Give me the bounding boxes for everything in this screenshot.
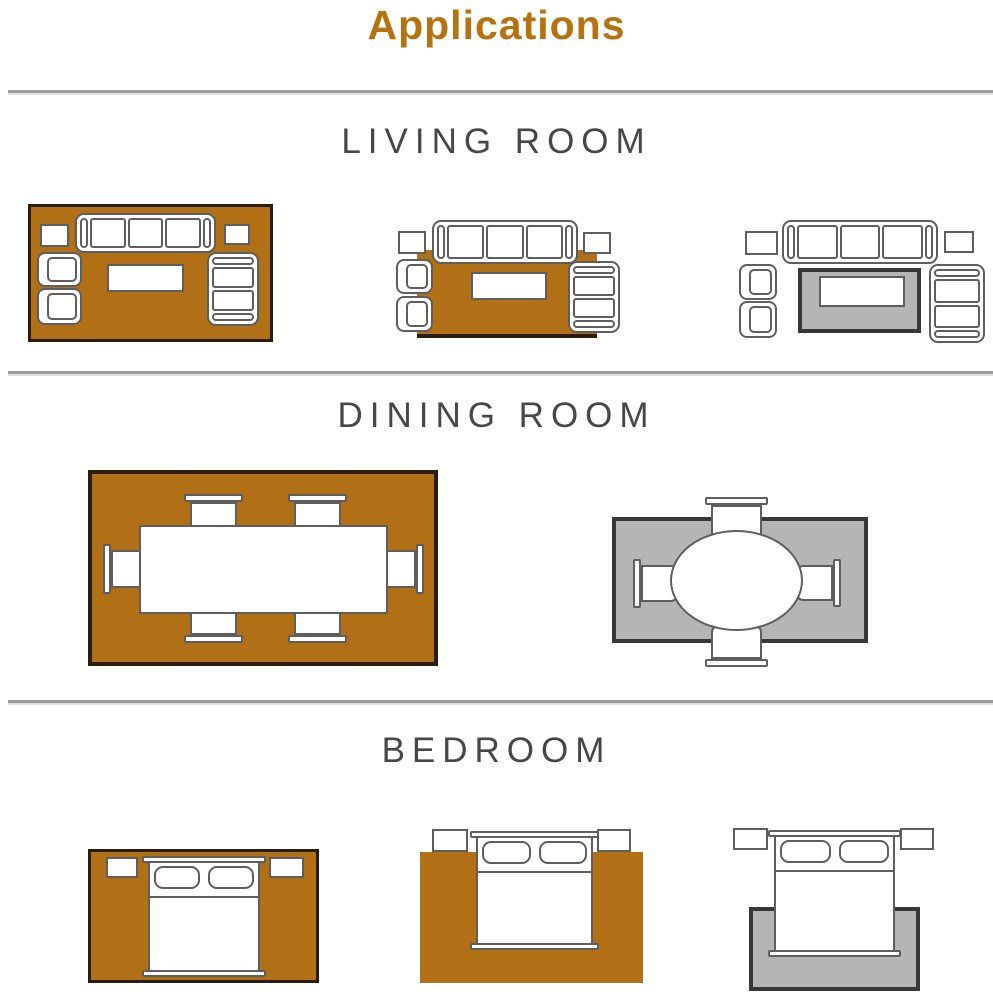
nightstand bbox=[597, 829, 631, 852]
pillow bbox=[539, 841, 588, 864]
round-table bbox=[670, 530, 803, 631]
bedroom-layout-rug-under-foot-of-bed bbox=[730, 823, 938, 995]
pillow bbox=[208, 866, 254, 889]
armchair bbox=[37, 252, 82, 287]
side-table bbox=[40, 224, 69, 247]
armchair-seat bbox=[749, 269, 772, 295]
sofa-arm bbox=[212, 313, 254, 321]
dining-table bbox=[139, 525, 388, 614]
sofa-cushion bbox=[90, 218, 126, 248]
sofa-cushion bbox=[212, 290, 254, 311]
armchair-seat bbox=[749, 306, 772, 333]
chair-back bbox=[705, 659, 768, 667]
sofa-cushion bbox=[840, 225, 881, 259]
sofa-cushion bbox=[212, 267, 254, 288]
sofa-arm bbox=[80, 218, 88, 248]
footboard bbox=[142, 970, 266, 977]
bedroom-layout-bed-fully-on-rug bbox=[88, 849, 319, 983]
sofa-cushion bbox=[934, 305, 980, 329]
armchair bbox=[739, 301, 777, 338]
bed bbox=[148, 856, 260, 977]
chair-back bbox=[416, 544, 424, 594]
side-table bbox=[224, 224, 250, 245]
sofa bbox=[432, 220, 578, 264]
loveseat bbox=[568, 261, 620, 333]
sofa-arm bbox=[437, 225, 445, 259]
blanket-edge bbox=[150, 896, 258, 898]
dining-chair bbox=[382, 544, 424, 594]
armchair-seat bbox=[406, 264, 428, 289]
section-divider bbox=[8, 700, 993, 703]
nightstand bbox=[900, 828, 934, 850]
sofa-cushion bbox=[934, 279, 980, 303]
blanket-edge bbox=[478, 871, 591, 873]
pillow bbox=[482, 841, 531, 864]
armchair-seat bbox=[47, 293, 77, 320]
section-divider bbox=[8, 90, 993, 93]
sofa-arm bbox=[565, 225, 573, 259]
loveseat bbox=[207, 252, 259, 326]
chair-back bbox=[184, 635, 243, 643]
chair-back bbox=[288, 494, 347, 502]
bedroom-layout-bed-two-thirds-on-rug bbox=[420, 823, 643, 984]
sofa-arm bbox=[925, 225, 933, 259]
sofa-cushion bbox=[447, 225, 484, 259]
chair-back bbox=[833, 559, 841, 607]
footboard bbox=[470, 943, 599, 950]
pillow bbox=[780, 840, 831, 863]
chair-back bbox=[184, 494, 243, 502]
headboard bbox=[142, 856, 266, 863]
sofa-cushion bbox=[797, 225, 838, 259]
sofa-arm bbox=[212, 257, 254, 265]
side-table bbox=[745, 231, 778, 255]
sofa-cushion bbox=[573, 298, 615, 318]
sofa-arm bbox=[934, 330, 980, 338]
footboard bbox=[768, 950, 901, 957]
sofa-cushion bbox=[526, 225, 563, 259]
living-room-layout-all-furniture-on-rug bbox=[28, 204, 273, 342]
sofa-cushion bbox=[128, 218, 164, 248]
blanket-edge bbox=[776, 870, 893, 872]
coffee-table bbox=[107, 264, 184, 292]
living-room-layout-coffee-table-only-on-rug bbox=[738, 215, 988, 345]
chair-back bbox=[633, 559, 641, 608]
armchair bbox=[739, 264, 777, 300]
dining-chair bbox=[705, 625, 768, 667]
armchair-seat bbox=[47, 257, 77, 282]
sofa-cushion bbox=[573, 276, 615, 296]
side-table bbox=[944, 231, 974, 253]
sofa-cushion bbox=[486, 225, 523, 259]
armchair bbox=[396, 259, 433, 294]
section-divider bbox=[8, 371, 993, 374]
sofa bbox=[75, 213, 216, 253]
headboard bbox=[768, 830, 901, 837]
sofa-arm bbox=[787, 225, 795, 259]
page-title: Applications bbox=[0, 2, 993, 49]
sofa-arm bbox=[573, 266, 615, 274]
pillow bbox=[154, 866, 200, 889]
chair-back bbox=[103, 544, 111, 594]
armchair bbox=[396, 296, 433, 332]
nightstand bbox=[106, 857, 138, 878]
sofa bbox=[782, 220, 938, 264]
sofa-arm bbox=[203, 218, 211, 248]
sofa-cushion bbox=[882, 225, 923, 259]
bed bbox=[476, 831, 593, 950]
dining-room-layout-round-table bbox=[608, 497, 872, 667]
loveseat bbox=[929, 264, 985, 343]
armchair bbox=[37, 288, 82, 325]
sofa-arm bbox=[573, 320, 615, 328]
side-table bbox=[583, 232, 611, 254]
armchair-seat bbox=[406, 301, 428, 327]
dining-room-layout-rectangular-table bbox=[88, 470, 438, 666]
sofa-arm bbox=[934, 269, 980, 277]
living-room-layout-front-legs-on-rug bbox=[395, 215, 623, 340]
coffee-table bbox=[819, 276, 905, 307]
side-table bbox=[398, 231, 426, 254]
headboard bbox=[470, 831, 599, 838]
nightstand bbox=[733, 828, 768, 850]
bedroom-heading: BEDROOM bbox=[0, 731, 993, 771]
sofa-cushion bbox=[165, 218, 201, 248]
living-room-heading: LIVING ROOM bbox=[0, 122, 993, 162]
bed bbox=[774, 830, 895, 957]
chair-back bbox=[705, 497, 768, 505]
nightstand bbox=[269, 857, 304, 878]
chair-back bbox=[288, 635, 347, 643]
dining-room-heading: DINING ROOM bbox=[0, 396, 993, 436]
coffee-table bbox=[471, 272, 547, 300]
nightstand bbox=[432, 829, 468, 852]
pillow bbox=[839, 840, 890, 863]
